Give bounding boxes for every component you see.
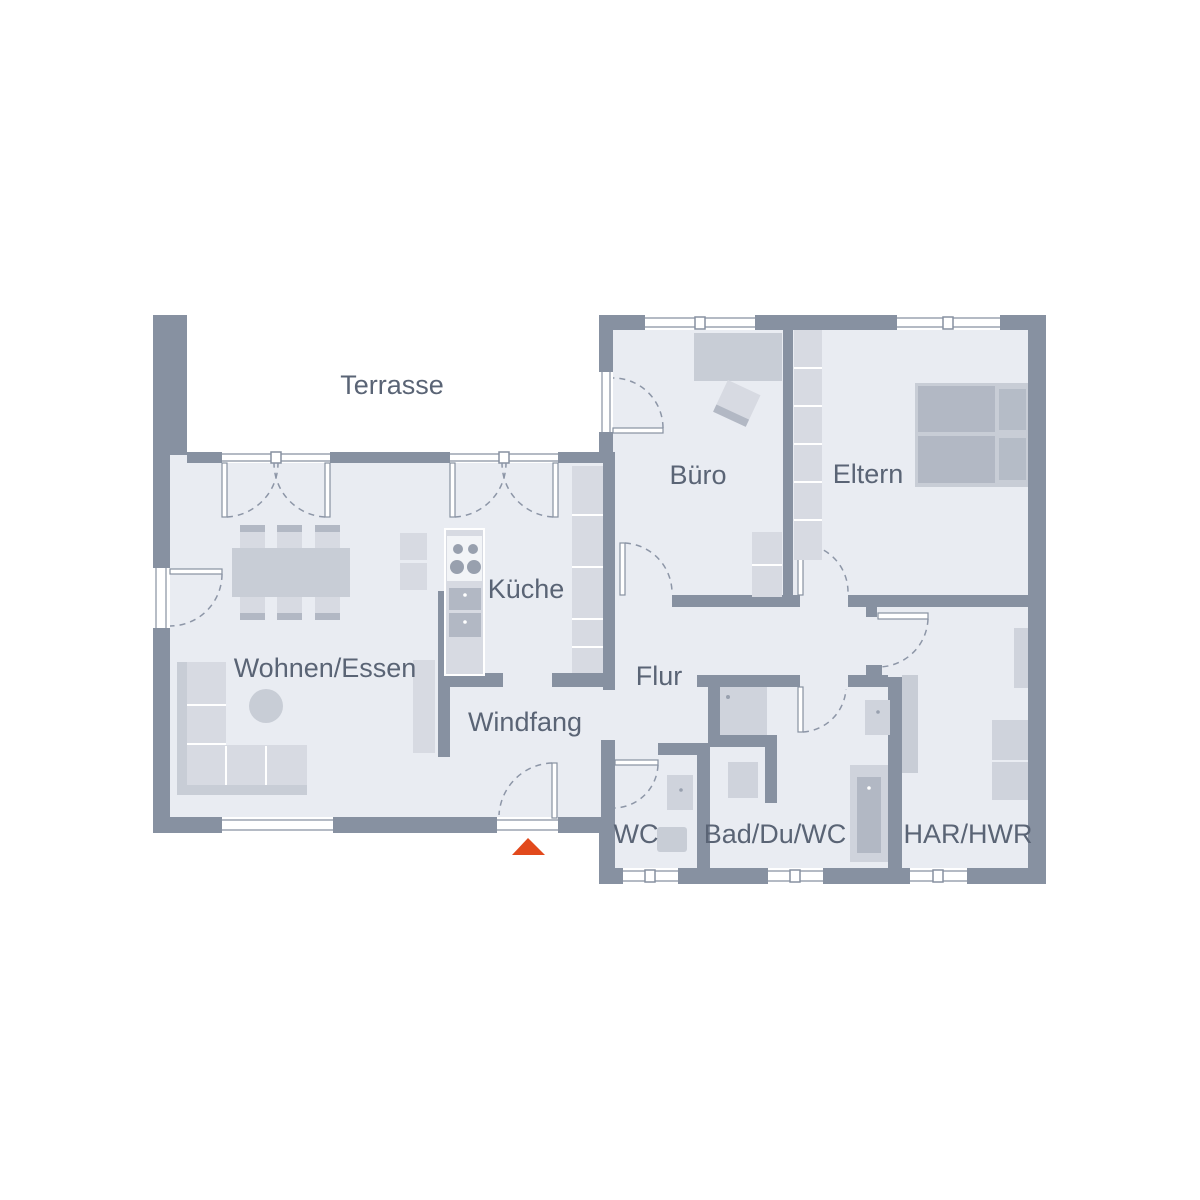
wall-segment (1028, 315, 1046, 884)
shower (720, 687, 767, 735)
window-marker (943, 317, 953, 329)
wall-segment (755, 315, 897, 330)
window-terrace-door-right (450, 452, 558, 463)
window-marker (933, 870, 943, 882)
room-label-kueche: Küche (488, 574, 565, 604)
dining-set (232, 525, 350, 620)
kitchen-sink (449, 613, 481, 637)
washbasin (728, 762, 758, 798)
washing-machine (992, 720, 1028, 760)
room-label-har-hwr: HAR/HWR (904, 819, 1033, 849)
wall-segment (599, 868, 623, 884)
wall-segment (603, 463, 615, 690)
wall-segment (866, 607, 877, 617)
room-label-flur: Flur (636, 661, 683, 691)
wall-segment (153, 315, 187, 455)
wall-segment (697, 743, 710, 868)
room-label-eltern: Eltern (833, 459, 904, 489)
wall-segment (848, 595, 1028, 607)
kitchen-cabinet (400, 533, 427, 560)
wall-segment (765, 747, 777, 803)
washbasin (667, 775, 693, 810)
wall-segment (153, 817, 222, 833)
wall-segment (333, 817, 497, 833)
pillow (999, 389, 1026, 430)
room-label-terrasse: Terrasse (340, 370, 444, 400)
room-label-wohnen-essen: Wohnen/Essen (234, 653, 417, 683)
dining-table (232, 548, 350, 597)
pillow (999, 438, 1026, 480)
room-label-wc: WC (614, 819, 659, 849)
wall-segment (330, 452, 450, 463)
wall-segment (552, 673, 605, 687)
desk (694, 333, 782, 381)
cooktop (447, 536, 482, 581)
bathtub (850, 765, 888, 862)
room-label-windfang: Windfang (468, 707, 582, 737)
window-bedroom (897, 315, 1000, 330)
dryer (992, 762, 1028, 800)
wall-segment (708, 735, 777, 747)
window-terrace-door-left (222, 452, 330, 463)
window-marker (499, 452, 509, 463)
wall-segment (599, 432, 613, 463)
double-bed (915, 383, 1028, 487)
window-wc (623, 868, 678, 884)
window-living-side (153, 568, 170, 628)
wall-segment (678, 868, 768, 884)
kitchen-sink (449, 588, 481, 610)
window-marker (271, 452, 281, 463)
toilet (657, 827, 687, 852)
wall-segment (1000, 315, 1028, 330)
wall-segment (187, 452, 222, 463)
room-label-bad: Bad/Du/WC (704, 819, 847, 849)
window-office-french-door (599, 372, 613, 432)
window-office (645, 315, 755, 330)
window-marker (645, 870, 655, 882)
kitchen-counter (572, 466, 603, 673)
floor-plan-page: Terrasse Wohnen/Essen Küche Windfang Flu… (0, 0, 1200, 1200)
wall-segment (783, 330, 793, 595)
wall-segment (888, 677, 902, 868)
wall-segment (153, 628, 170, 833)
coffee-table (249, 689, 283, 723)
wall-segment (823, 868, 910, 884)
wall-segment (599, 315, 645, 330)
duct-pillar (902, 675, 918, 773)
window-marker (695, 317, 705, 329)
window-bath (768, 868, 823, 884)
tall-cabinet (1014, 628, 1028, 688)
wall-segment (153, 452, 170, 568)
wall-segment (697, 675, 800, 687)
window-utility (910, 868, 967, 884)
washbasin (865, 700, 890, 735)
window-living-bottom (222, 817, 333, 833)
floor-plan-svg: Terrasse Wohnen/Essen Küche Windfang Flu… (0, 0, 1200, 1200)
wall-segment (599, 330, 613, 372)
room-label-buero: Büro (669, 460, 726, 490)
entrance-door-sill (497, 817, 558, 833)
kitchen-cabinet (400, 563, 427, 590)
entrance-marker-icon (512, 838, 545, 855)
wall-segment (658, 743, 697, 755)
wall-segment (848, 675, 888, 687)
window-marker (790, 870, 800, 882)
